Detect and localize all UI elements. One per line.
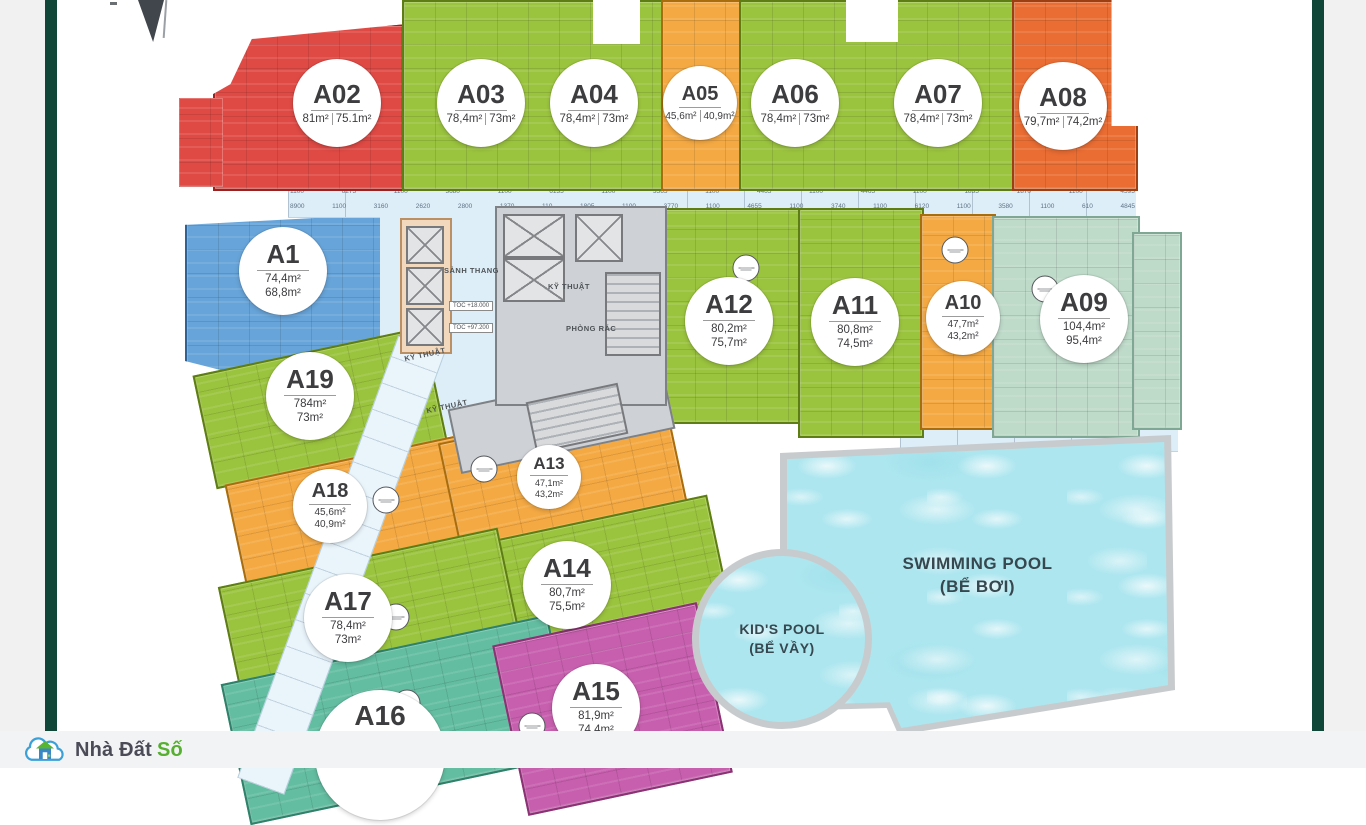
- tick-dash: [110, 2, 117, 5]
- divider: [1037, 113, 1088, 114]
- unit-id: A10: [945, 293, 982, 313]
- divider: [703, 320, 754, 321]
- unit-area-gross: 74,4m²: [265, 273, 301, 287]
- unit-id: A1: [266, 241, 299, 267]
- divider: [570, 707, 621, 708]
- floorplan-page: 1100627511003680110061351100356511004465…: [0, 0, 1366, 768]
- divider: [311, 110, 362, 111]
- unit-area-net: 43,2m²: [947, 331, 978, 343]
- unit-id: A04: [570, 81, 618, 107]
- dimension-value: 1100: [957, 204, 971, 211]
- unit-area-net: 73m²: [489, 113, 515, 125]
- unit-area-gross: 78,4m²: [761, 113, 797, 125]
- brand-name-accent: Số: [157, 739, 183, 761]
- brand-name: Nhà ĐấtSố: [75, 740, 183, 760]
- toc-lower-label: TOC +97.200: [449, 323, 493, 333]
- balcony-notch: [593, 0, 640, 44]
- unit-area-net: 75,5m²: [549, 601, 585, 615]
- right-margin: [1324, 0, 1366, 731]
- unit-id: A02: [313, 81, 361, 107]
- divider: [700, 110, 701, 122]
- unit-id: A18: [312, 481, 349, 501]
- elevator-shaft: [503, 258, 565, 302]
- divider: [829, 321, 880, 322]
- unit-area-net: 73m²: [294, 412, 327, 426]
- unit-area-net: 73m²: [803, 113, 829, 125]
- technical-label: KỸ THUẬT: [548, 282, 590, 291]
- unit-a02-annex: [179, 98, 223, 187]
- divider: [942, 113, 943, 125]
- dimension-value: 610: [1082, 204, 1093, 211]
- toc-upper-label: TOC +18.000: [449, 301, 493, 311]
- unit-area-gross: 80,7m²: [549, 587, 585, 601]
- divider: [598, 113, 599, 125]
- garbage-room-label: PHÒNG RÁC: [566, 324, 616, 333]
- unit-area-gross: 104,4m²: [1063, 321, 1105, 335]
- dimension-value: 1100: [1040, 204, 1054, 211]
- unit-id: A15: [572, 678, 620, 704]
- unit-stamp: [373, 487, 400, 514]
- unit-badge-a19[interactable]: A19 784m²73m²: [266, 352, 354, 440]
- unit-stamp: [942, 237, 969, 264]
- dimension-value: 2800: [458, 204, 472, 211]
- unit-id: A09: [1060, 289, 1108, 315]
- elevator-shaft: [503, 214, 565, 258]
- unit-badge-a12[interactable]: A12 80,2m²75,7m²: [685, 277, 773, 365]
- unit-badge-a04[interactable]: A04 78,4m²73m²: [550, 59, 638, 147]
- left-accent-bar: [45, 0, 57, 731]
- unit-area-net: 40,9m²: [704, 111, 735, 122]
- lobby-label: SẢNH THANG: [444, 266, 499, 275]
- unit-badge-a05[interactable]: A05 45,6m²40,9m²: [663, 66, 737, 140]
- unit-area-gross: 80,8m²: [837, 324, 873, 338]
- unit-badge-a14[interactable]: A14 80,7m²75,5m²: [523, 541, 611, 629]
- unit-area-gross: 78,4m²: [330, 620, 366, 634]
- unit-badge-a18[interactable]: A18 45,6m²40,9m²: [293, 469, 367, 543]
- unit-id: A19: [286, 366, 334, 392]
- divider: [485, 113, 486, 125]
- divider: [322, 617, 373, 618]
- elevator-shaft: [406, 267, 444, 305]
- dimension-value: 4845: [1120, 204, 1134, 211]
- unit-area-gross: 81m²: [303, 113, 329, 125]
- unit-area-net: 73m²: [602, 113, 628, 125]
- divider: [284, 395, 335, 396]
- unit-badge-a09[interactable]: A09 104,4m²95,4m²: [1040, 275, 1128, 363]
- dimension-value: 3160: [374, 204, 388, 211]
- unit-area-net: 40,9m²: [314, 519, 345, 531]
- unit-id: A17: [324, 588, 372, 614]
- kids-pool-label-line2: (BỂ VẦY): [739, 639, 824, 658]
- divider: [541, 584, 592, 585]
- divider: [1063, 116, 1064, 128]
- unit-id: A12: [705, 291, 753, 317]
- right-accent-bar: [1312, 0, 1324, 731]
- divider: [679, 107, 722, 108]
- unit-area-gross: 47,7m²: [947, 319, 978, 331]
- unit-badge-a07[interactable]: A07 78,4m²73m²: [894, 59, 982, 147]
- unit-area-net: 74,2m²: [1067, 116, 1103, 128]
- unit-badge-a17[interactable]: A17 78,4m²73m²: [304, 574, 392, 662]
- divider: [799, 113, 800, 125]
- unit-id: A06: [771, 81, 819, 107]
- unit-area-gross: 78,4m²: [904, 113, 940, 125]
- unit-id: A11: [832, 292, 878, 318]
- unit-area-net: 75.1m²: [336, 113, 372, 125]
- unit-area-net: 75,7m²: [711, 337, 747, 351]
- unit-badge-a10[interactable]: A10 47,7m²43,2m²: [926, 281, 1000, 355]
- unit-area-net: 43,2m²: [535, 489, 563, 500]
- elevator-shaft: [406, 308, 444, 346]
- unit-id: A16: [354, 702, 405, 730]
- divider: [568, 110, 619, 111]
- unit-id: A08: [1039, 84, 1087, 110]
- unit-area-gross: 47,1m²: [535, 478, 563, 489]
- unit-badge-a03[interactable]: A03 78,4m²73m²: [437, 59, 525, 147]
- unit-badge-a11[interactable]: A11 80,8m²74,5m²: [811, 278, 899, 366]
- unit-area-net: 74,5m²: [837, 338, 873, 352]
- dimension-value: 8900: [290, 204, 304, 211]
- unit-area-net: 73m²: [946, 113, 972, 125]
- unit-stamp: [471, 456, 498, 483]
- unit-id: A03: [457, 81, 505, 107]
- elevator-shaft: [575, 214, 623, 262]
- brand-logo[interactable]: Nhà ĐấtSố: [22, 735, 183, 765]
- unit-id: A13: [533, 455, 564, 472]
- unit-a09-annex: [1132, 232, 1182, 430]
- divider: [1058, 318, 1109, 319]
- unit-badge-a13[interactable]: A13 47,1m²43,2m²: [517, 445, 581, 509]
- dimension-value: 3580: [998, 204, 1012, 211]
- balcony-notch: [846, 0, 898, 42]
- unit-area-gross: 79,7m²: [1024, 116, 1060, 128]
- unit-badge-a1[interactable]: A1 74,4m²68,8m²: [239, 227, 327, 315]
- unit-area-net: 68,8m²: [265, 287, 301, 301]
- cloud-house-icon: [22, 735, 68, 765]
- unit-badge-a06[interactable]: A06 78,4m²73m²: [751, 59, 839, 147]
- unit-area-gross: 80,2m²: [711, 323, 747, 337]
- unit-badge-a02[interactable]: A02 81m²75.1m²: [293, 59, 381, 147]
- elevator-shaft: [406, 226, 444, 264]
- unit-id: A07: [914, 81, 962, 107]
- unit-area-gross: 78,4m²: [560, 113, 596, 125]
- unit-badge-a08[interactable]: A08 79,7m²74,2m²: [1019, 62, 1107, 150]
- kids-pool: KID'S POOL (BỂ VẦY): [692, 549, 872, 729]
- divider: [530, 475, 567, 476]
- unit-area-gross: 78,4m²: [447, 113, 483, 125]
- unit-area-net: 95,4m²: [1063, 335, 1105, 349]
- divider: [332, 113, 333, 125]
- dimension-value: 1100: [332, 204, 346, 211]
- dimension-value: 2620: [416, 204, 430, 211]
- kids-pool-label-line1: KID'S POOL: [739, 620, 824, 639]
- divider: [455, 110, 506, 111]
- unit-id: A14: [543, 555, 591, 581]
- unit-id: A05: [682, 84, 719, 104]
- footer-bar: [0, 731, 1366, 768]
- unit-area-net: 73m²: [330, 634, 366, 648]
- unit-area-gross: 45,6m²: [665, 111, 696, 122]
- unit-area-gross: 784m²: [294, 398, 327, 412]
- unit-area-gross: 81,9m²: [578, 710, 614, 724]
- left-margin: [0, 0, 45, 731]
- divider: [942, 316, 985, 317]
- unit-area-gross: 45,6m²: [314, 507, 345, 519]
- divider: [769, 110, 820, 111]
- divider: [912, 110, 963, 111]
- divider: [309, 504, 352, 505]
- kids-pool-label: KID'S POOL (BỂ VẦY): [739, 620, 824, 658]
- brand-name-dark: Nhà Đất: [75, 739, 152, 761]
- staircase: [605, 272, 661, 356]
- divider: [257, 270, 308, 271]
